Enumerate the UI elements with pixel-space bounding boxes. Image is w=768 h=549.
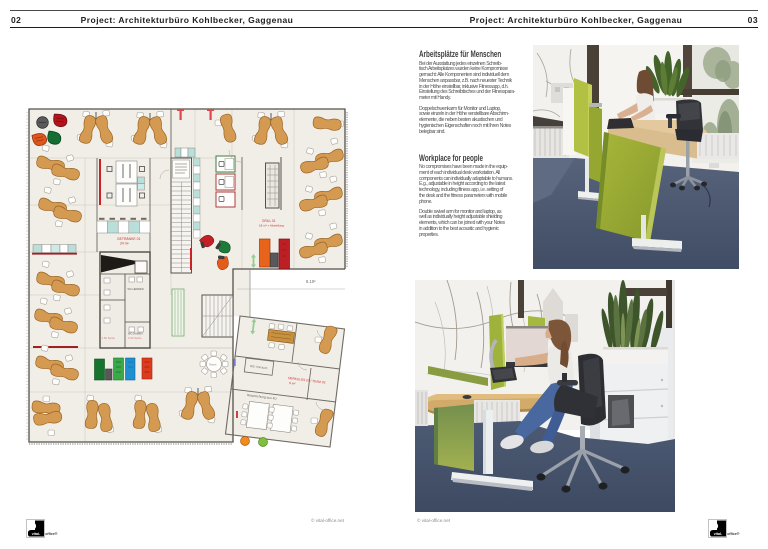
- svg-text:1.60 Spüle: 1.60 Spüle: [102, 336, 116, 340]
- svg-text:WC-HERREN: WC-HERREN: [128, 287, 144, 291]
- svg-text:WC-DAMEN: WC-DAMEN: [128, 332, 143, 336]
- svg-text:9 m²: 9 m²: [289, 381, 296, 386]
- svg-text:18 m² + Abstellung: 18 m² + Abstellung: [259, 224, 284, 228]
- svg-text:2.60 Spüle: 2.60 Spüle: [128, 336, 142, 340]
- svg-text:GRILL 01: GRILL 01: [262, 219, 276, 223]
- svg-text:GETRÄNKE 01: GETRÄNKE 01: [117, 237, 140, 241]
- svg-text:6.10²: 6.10²: [306, 279, 316, 284]
- svg-text:Team: Team: [209, 363, 217, 367]
- svg-text:24 m²: 24 m²: [120, 242, 130, 246]
